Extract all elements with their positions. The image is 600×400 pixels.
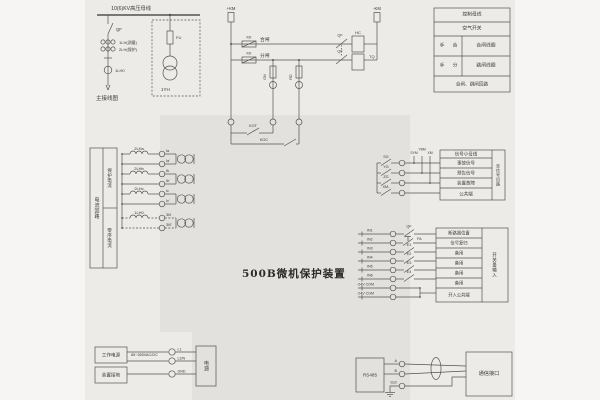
schematic-canvas: 10(6)KV高压母线 QF 1LH(测量) 2LH(保护) 1LH0 主接线图 — [0, 0, 600, 400]
terminal-label: SLD — [390, 381, 397, 385]
terminal-label: L2/N — [178, 357, 186, 361]
bus-label: XM — [427, 151, 432, 155]
terminal-label: Ic' — [166, 199, 170, 203]
trip-output-label: KOT — [249, 124, 257, 128]
red-lamp-label: RD — [289, 74, 293, 80]
signal-side-label: 至信号回路 — [496, 163, 501, 186]
contact-label: SG — [383, 155, 389, 159]
closing-coil-label: HC — [355, 30, 361, 35]
power-box-label: 电源 — [203, 360, 209, 373]
terminal-label: 3I0 — [166, 213, 171, 217]
input-label: IN3 — [367, 247, 373, 251]
zero-ct-label: 1LH0 — [115, 68, 125, 73]
table-cell: 备用 — [455, 280, 464, 287]
voltage-range-label: 85~265VAC/DC — [131, 353, 158, 357]
contact-label: XM- — [383, 185, 391, 189]
zero-current-label: 零序电流 — [107, 228, 113, 249]
terminal-label: Ib — [166, 169, 169, 173]
kk-label: KK — [246, 52, 252, 56]
table-cell: 公共端 — [459, 191, 473, 198]
diagram-caption: 主接线图 — [96, 94, 119, 102]
pt-label: 1YH — [161, 87, 170, 92]
kk-label: KK — [246, 36, 252, 40]
table-cell: 信号复归 — [450, 240, 467, 247]
contact-label: E4 — [407, 270, 412, 274]
table-cell: 合闸线圈 — [476, 42, 495, 49]
work-power-label: 工作电源 — [102, 352, 121, 359]
table-cell: 信号小母线 — [455, 151, 478, 158]
busbar-label: 10(6)KV高压母线 — [111, 4, 151, 12]
terminal-label: L1 — [178, 348, 182, 352]
contact-label: E2 — [407, 252, 412, 256]
table-cell: 装置故障 — [457, 180, 475, 187]
input-label: IN4 — [367, 256, 373, 260]
terminal-label: Ia' — [166, 159, 170, 163]
table-cell: 手 — [440, 42, 445, 49]
current-loop-label: 电流回路 — [94, 196, 100, 220]
bus-label: YBM — [418, 148, 426, 152]
input-label: IN1 — [367, 229, 373, 233]
terminal-label: 3I0' — [166, 223, 172, 227]
terminal-label: Ib' — [166, 179, 170, 183]
table-cell: 控制母线 — [462, 11, 481, 18]
schematic-page: 10(6)KV高压母线 QF 1LH(测量) 2LH(保护) 1LH0 主接线图 — [0, 0, 600, 400]
winding-label: 1LH0 — [134, 210, 144, 215]
table-cell: 合 — [453, 42, 458, 49]
table-cell: 备用 — [455, 250, 464, 257]
ground-label: 装置接地 — [102, 372, 121, 379]
table-cell: 事故信号 — [457, 160, 475, 167]
winding-label: 2LHb — [134, 166, 144, 171]
input-label: -24V COM — [357, 283, 374, 287]
table-cell: 开入公共端 — [448, 292, 470, 299]
table-cell: 断路器位置 — [448, 230, 470, 237]
contact-label: YG — [383, 165, 389, 169]
page-title: 500B微机保护装置 — [242, 267, 346, 280]
negative-bus-label: -KM — [373, 6, 381, 11]
close-output-label: KOC — [260, 138, 268, 142]
input-label: IN6 — [367, 274, 373, 278]
contact-label: E1 — [407, 243, 412, 247]
input-label: IN2 — [367, 238, 373, 242]
table-cell: 合闸、跳闸回路 — [456, 81, 489, 88]
contact-label: FA — [417, 237, 422, 241]
winding-label: 2LHa — [134, 146, 144, 151]
table-cell: 备用 — [455, 260, 464, 267]
table-cell: 备用 — [455, 270, 464, 277]
fuse-label: FU — [176, 35, 181, 40]
protect-current-label: 保护电流 — [107, 167, 113, 189]
ct-protect-label: 2LH(保护) — [119, 46, 138, 52]
positive-bus-label: +KM — [227, 6, 236, 11]
input-label: -24V COM — [357, 292, 374, 296]
trip-coil-label: TQ — [369, 54, 375, 59]
terminal-label: Ic — [166, 189, 169, 193]
input-label: IN5 — [367, 265, 373, 269]
input-side-label: 开关量输入 — [492, 252, 498, 277]
breaker-label: QF — [116, 27, 122, 32]
qf-aux-label: QF — [337, 34, 343, 38]
qf-aux-label: QF — [337, 50, 343, 54]
open-action-label: 分闸 — [260, 52, 270, 59]
ct-measure-label: 1LH(测量) — [119, 39, 138, 45]
contact-label: ZG — [383, 175, 388, 179]
terminal-label: GND — [178, 370, 186, 374]
table-cell: 空气开关 — [462, 25, 481, 32]
winding-label: 2LHc — [134, 186, 143, 191]
close-action-label: 合闸 — [260, 36, 270, 43]
contact-label: E3 — [407, 261, 412, 265]
table-cell: 跳闸线圈 — [476, 62, 495, 69]
green-lamp-label: GN — [263, 74, 267, 80]
bus-label: SYM — [410, 151, 418, 155]
rs485-box-label: RS485 — [363, 373, 377, 378]
table-cell: 分 — [453, 62, 458, 69]
contact-label: QF — [406, 225, 412, 229]
comm-interface-label: 通信接口 — [479, 369, 500, 377]
table-cell: 手 — [440, 62, 445, 69]
table-cell: 预告信号 — [457, 170, 475, 177]
